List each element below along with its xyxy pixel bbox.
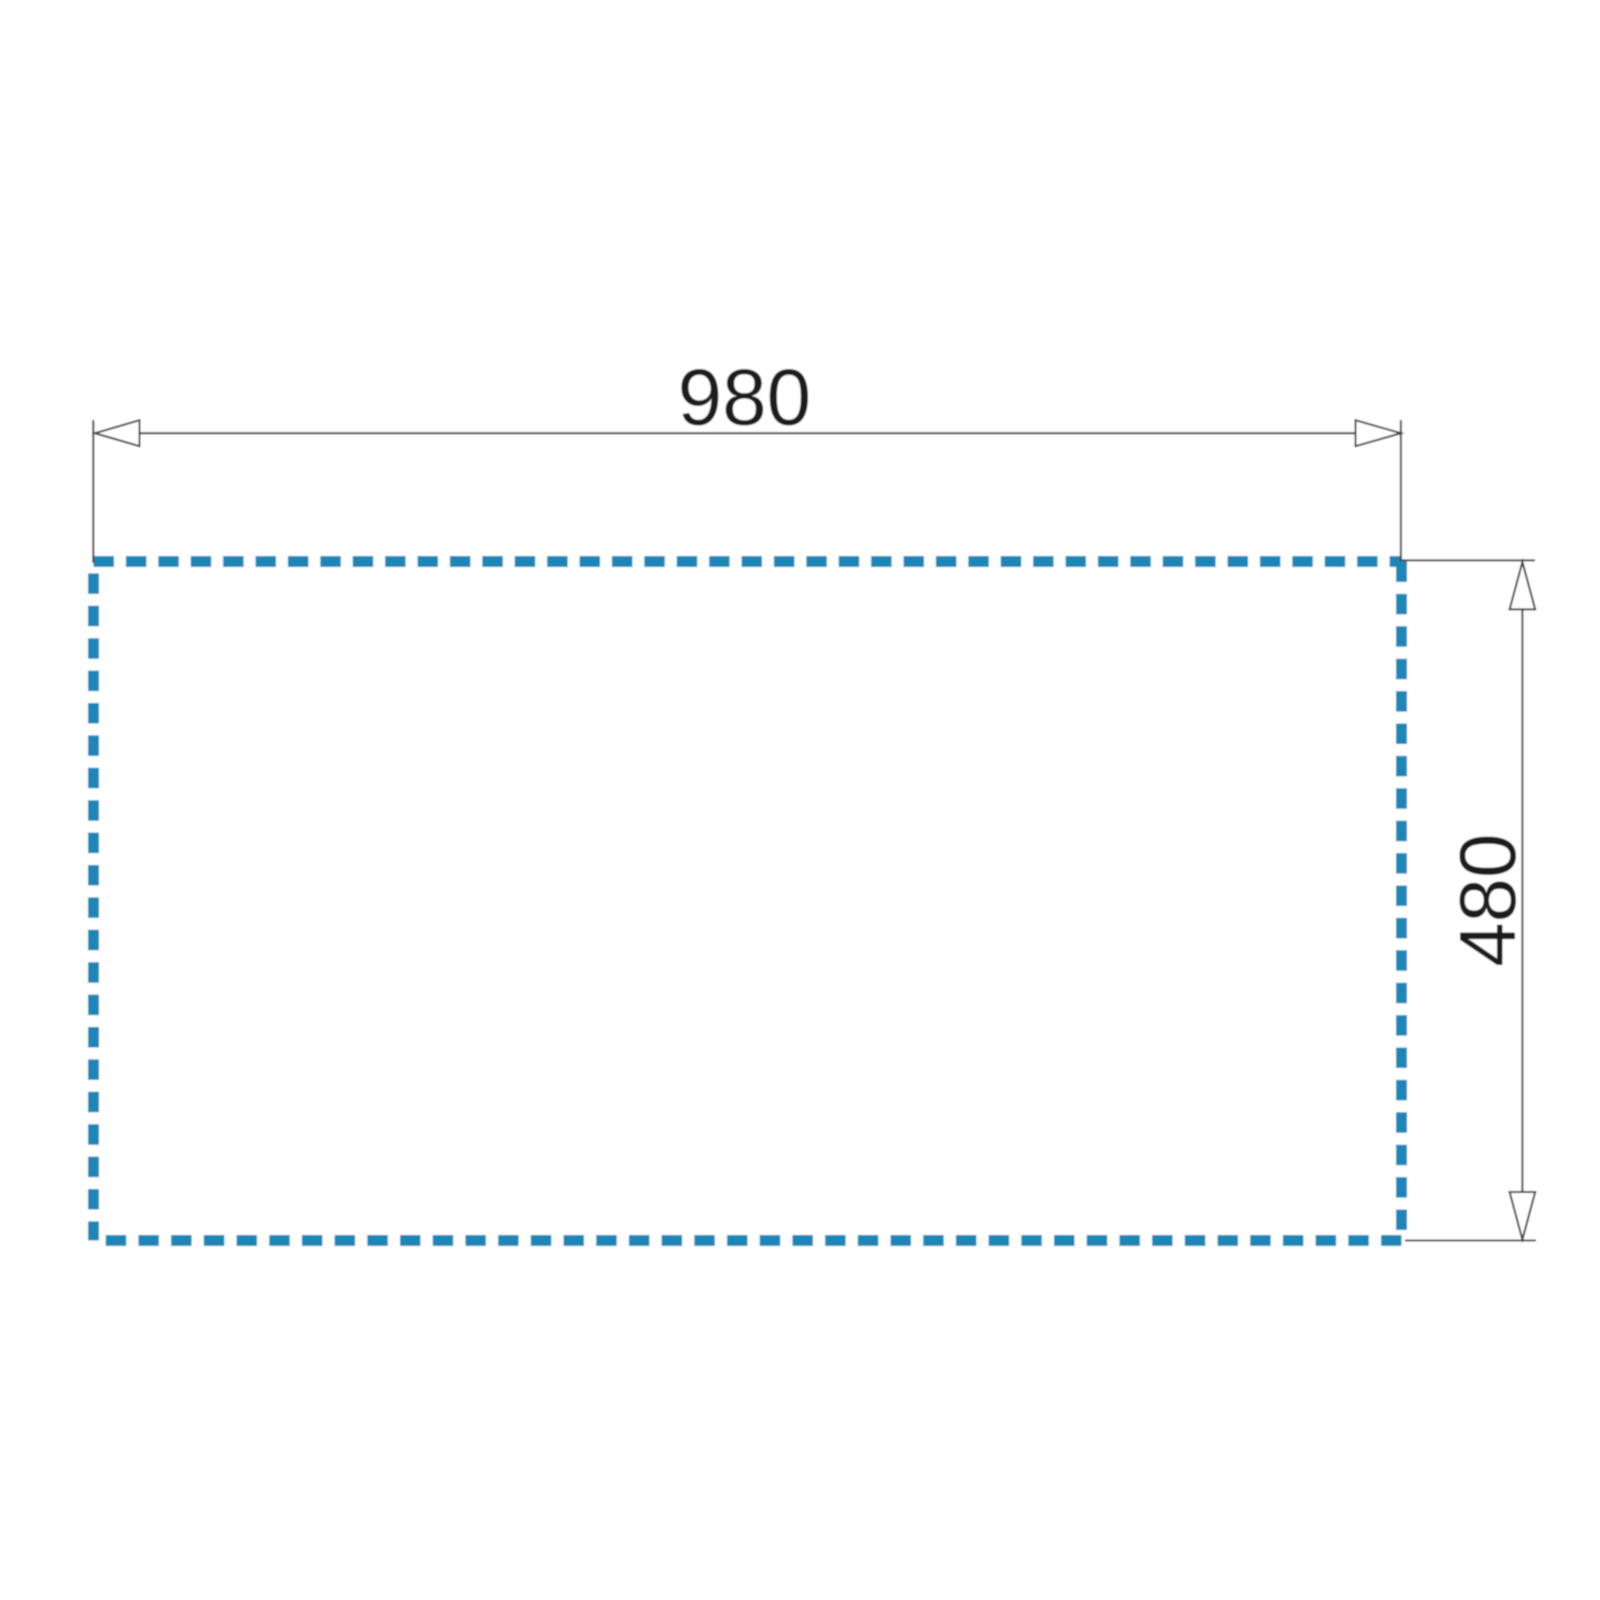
svg-text:480: 480 <box>1443 833 1532 966</box>
svg-text:980: 980 <box>678 352 811 441</box>
